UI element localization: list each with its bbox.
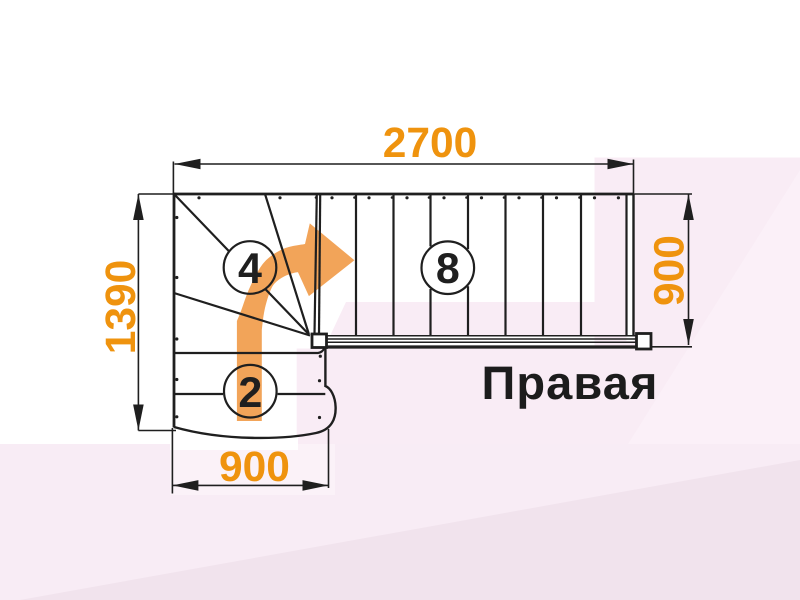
- svg-text:Правая: Правая: [481, 356, 658, 409]
- svg-text:2700: 2700: [383, 120, 478, 167]
- svg-text:1390: 1390: [98, 260, 145, 355]
- svg-text:900: 900: [647, 235, 694, 306]
- svg-text:8: 8: [436, 245, 460, 293]
- svg-text:2: 2: [238, 369, 262, 417]
- svg-text:900: 900: [219, 444, 290, 491]
- svg-text:4: 4: [238, 245, 262, 293]
